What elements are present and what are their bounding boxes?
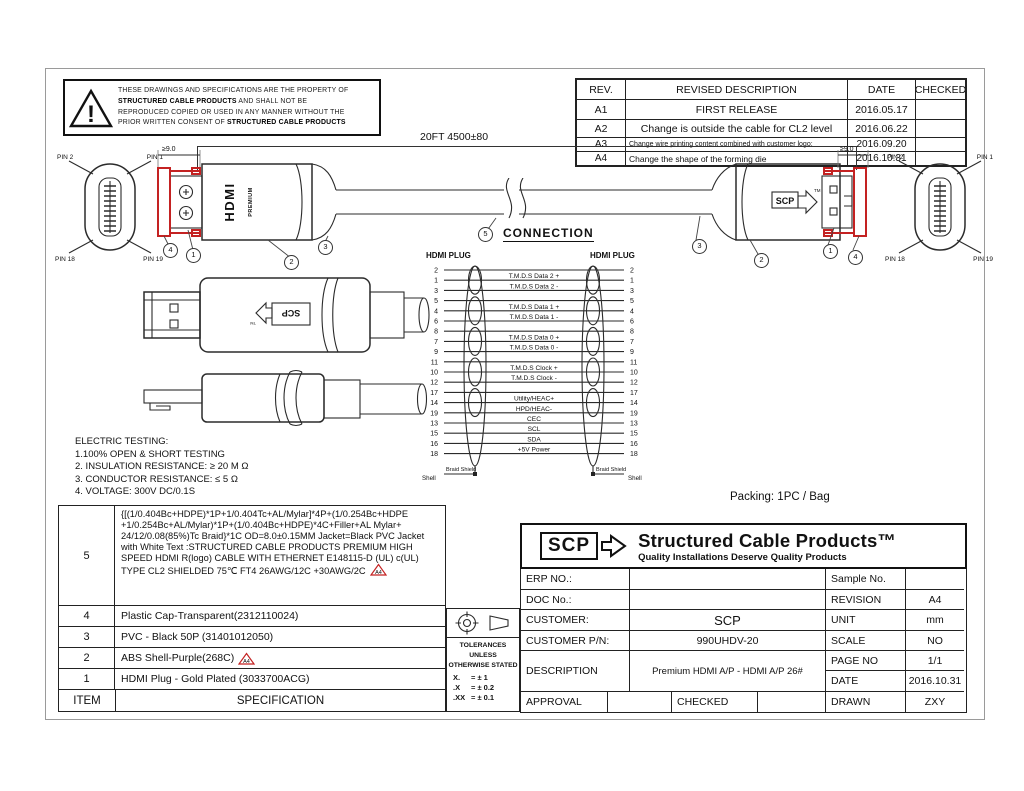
spec-row-item-1: 1HDMI Plug - Gold Plated (3033700ACG) bbox=[59, 669, 445, 690]
scp-logo-text-rotated: SCP bbox=[282, 308, 301, 318]
svg-text:19: 19 bbox=[630, 410, 638, 417]
customer-pn-value: 990UHDV-20 bbox=[629, 630, 825, 650]
svg-text:16: 16 bbox=[430, 441, 438, 448]
svg-text:9: 9 bbox=[630, 349, 634, 356]
svg-text:3: 3 bbox=[630, 288, 634, 295]
doc-no-value bbox=[629, 589, 825, 609]
spec-item-number: 5 bbox=[59, 506, 115, 605]
date-value: 2016.10.31 bbox=[905, 670, 964, 691]
customer-pn-label: CUSTOMER P/N: bbox=[521, 630, 629, 650]
svg-text:CEC: CEC bbox=[527, 416, 541, 423]
spec-rows: 5{[(1/0.404Bc+HDPE)*1P+1/0.404Tc+AL/Myla… bbox=[59, 506, 445, 690]
callout-2-badge: 2 bbox=[284, 255, 299, 270]
electric-testing-title: ELECTRIC TESTING: bbox=[75, 436, 249, 449]
svg-text:13: 13 bbox=[430, 421, 438, 428]
tolerance-row: X.= ± 1 bbox=[447, 672, 519, 682]
doc-no-label: DOC No.: bbox=[521, 589, 629, 609]
erp-value bbox=[629, 569, 825, 589]
plug-detail-side-view bbox=[132, 352, 432, 444]
scp-tm-text: TM bbox=[814, 188, 821, 193]
company-tagline: Quality Installations Deserve Quality Pr… bbox=[638, 552, 896, 563]
svg-text:5: 5 bbox=[630, 298, 634, 305]
checked-label: CHECKED bbox=[671, 692, 757, 712]
packing-note: Packing: 1PC / Bag bbox=[730, 491, 830, 503]
svg-text:16: 16 bbox=[630, 441, 638, 448]
pin1-label: PIN 1 bbox=[977, 154, 994, 161]
svg-text:7: 7 bbox=[630, 339, 634, 346]
approval-strip: APPROVAL CHECKED bbox=[521, 691, 825, 712]
date-col-header: DATE bbox=[847, 80, 915, 99]
spec-item-number: 1 bbox=[59, 669, 115, 689]
warning-text: THESE DRAWINGS AND SPECIFICATIONS ARE TH… bbox=[118, 86, 348, 129]
svg-text:8: 8 bbox=[630, 329, 634, 336]
svg-text:15: 15 bbox=[630, 431, 638, 438]
callout-1-badge: 1 bbox=[186, 248, 201, 263]
unit-value: mm bbox=[905, 609, 964, 630]
title-block-grid: ERP NO.: Sample No. DOC No.: REVISION A4… bbox=[520, 569, 967, 713]
left-cap-dimension: ≥9.0 bbox=[162, 146, 176, 153]
tolerance-row: .X= ± 0.2 bbox=[447, 682, 519, 692]
electric-testing-item: 1.100% OPEN & SHORT TESTING bbox=[75, 449, 249, 462]
svg-text:7: 7 bbox=[434, 339, 438, 346]
frustum-projection-icon bbox=[487, 611, 511, 635]
svg-text:Braid Shield: Braid Shield bbox=[446, 467, 476, 473]
spec-row-item-2: 2ABS Shell-Purple(268C)A4 bbox=[59, 648, 445, 669]
svg-text:1: 1 bbox=[434, 278, 438, 285]
spec-item-text: PVC - Black 50P (31401012050) bbox=[115, 627, 445, 647]
callout-2-badge: 2 bbox=[754, 253, 769, 268]
scp-logo-arrow-icon bbox=[600, 532, 628, 560]
spec-row-item-4: 4Plastic Cap-Transparent(2312110024) bbox=[59, 606, 445, 627]
svg-text:Utility/HEAC+: Utility/HEAC+ bbox=[514, 396, 554, 403]
callout-1-badge: 1 bbox=[823, 244, 838, 259]
sample-no-value bbox=[905, 569, 964, 589]
description-col-header: REVISED DESCRIPTION bbox=[625, 80, 847, 99]
specification-table: 5{[(1/0.404Bc+HDPE)*1P+1/0.404Tc+AL/Myla… bbox=[58, 505, 446, 712]
scale-value: NO bbox=[905, 630, 964, 650]
pin18-label: PIN 18 bbox=[55, 256, 75, 263]
erp-label: ERP NO.: bbox=[521, 569, 629, 589]
svg-text:T.M.D.S Data 0 +: T.M.D.S Data 0 + bbox=[509, 334, 560, 341]
spec-item-text: {[(1/0.404Bc+HDPE)*1P+1/0.404Tc+AL/Mylar… bbox=[115, 506, 445, 605]
pin18-label: PIN 18 bbox=[885, 256, 905, 263]
customer-label: CUSTOMER: bbox=[521, 609, 629, 630]
svg-text:12: 12 bbox=[430, 380, 438, 387]
revision-marker-icon: A4 bbox=[238, 652, 255, 665]
warning-triangle-icon: ! bbox=[68, 87, 114, 129]
svg-text:6: 6 bbox=[630, 319, 634, 326]
revision-table-header: REV. REVISED DESCRIPTION DATE CHECKED bbox=[577, 80, 965, 99]
pin19-label: PIN 19 bbox=[973, 256, 993, 263]
svg-text:18: 18 bbox=[430, 451, 438, 458]
electric-testing-block: ELECTRIC TESTING: 1.100% OPEN & SHORT TE… bbox=[75, 436, 249, 499]
scp-logo: SCP bbox=[540, 532, 598, 560]
svg-text:6: 6 bbox=[434, 319, 438, 326]
length-dimension-label: 20FT 4500±80 bbox=[420, 131, 488, 143]
spec-item-text: HDMI Plug - Gold Plated (3033700ACG) bbox=[115, 669, 445, 689]
svg-text:5: 5 bbox=[434, 298, 438, 305]
scale-label: SCALE bbox=[825, 630, 905, 650]
svg-text:10: 10 bbox=[630, 370, 638, 377]
svg-text:4: 4 bbox=[434, 308, 438, 315]
spec-item-number: 2 bbox=[59, 648, 115, 668]
premium-text: PREMIUM bbox=[248, 187, 254, 216]
approval-value bbox=[607, 692, 671, 712]
target-projection-icon bbox=[455, 611, 479, 635]
page-no-label: PAGE NO bbox=[825, 650, 905, 670]
electric-testing-item: 2. INSULATION RESISTANCE: ≥ 20 M Ω bbox=[75, 461, 249, 474]
spec-row-item-3: 3PVC - Black 50P (31401012050) bbox=[59, 627, 445, 648]
svg-text:HPD/HEAC-: HPD/HEAC- bbox=[516, 406, 552, 413]
connection-diagram: 2211T.M.D.S Data 2 +33T.M.D.S Data 2 -55… bbox=[420, 262, 680, 492]
electric-testing-item: 3. CONDUCTOR RESISTANCE: ≤ 5 Ω bbox=[75, 474, 249, 487]
description-value: Premium HDMI A/P - HDMI A/P 26# bbox=[629, 650, 825, 691]
drawn-label: DRAWN bbox=[825, 691, 905, 712]
svg-text:8: 8 bbox=[434, 329, 438, 336]
svg-text:T.M.D.S Data 1 -: T.M.D.S Data 1 - bbox=[510, 314, 559, 321]
spec-item-text: Plastic Cap-Transparent(2312110024) bbox=[115, 606, 445, 626]
svg-text:Shell: Shell bbox=[422, 475, 436, 482]
scp-logo-text: SCP bbox=[776, 196, 795, 206]
svg-text:T.M.D.S Clock +: T.M.D.S Clock + bbox=[510, 365, 558, 372]
revision-row-A2: A2Change is outside the cable for CL2 le… bbox=[577, 119, 965, 137]
svg-text:SCL: SCL bbox=[528, 426, 541, 433]
spec-item-number: 3 bbox=[59, 627, 115, 647]
svg-text:SDA: SDA bbox=[527, 436, 541, 443]
svg-text:Braid Shield: Braid Shield bbox=[596, 467, 626, 473]
connection-title: CONNECTION bbox=[503, 226, 594, 242]
drawn-value: ZXY bbox=[905, 691, 964, 712]
svg-text:2: 2 bbox=[630, 268, 634, 275]
svg-text:Shell: Shell bbox=[628, 475, 642, 482]
page-no-value: 1/1 bbox=[905, 650, 964, 670]
pin2-label: PIN 2 bbox=[57, 154, 74, 161]
left-plug-side-view: ≥9.0 HDMI PREMIUM bbox=[148, 140, 373, 265]
title-block-header: SCP Structured Cable Products™ Quality I… bbox=[520, 523, 967, 569]
svg-text:14: 14 bbox=[630, 400, 638, 407]
svg-text:!: ! bbox=[87, 101, 95, 128]
svg-text:15: 15 bbox=[430, 431, 438, 438]
title-block: SCP Structured Cable Products™ Quality I… bbox=[520, 523, 967, 713]
callout-4-badge: 4 bbox=[163, 243, 178, 258]
checked-value bbox=[757, 692, 825, 712]
svg-text:11: 11 bbox=[431, 359, 438, 366]
sample-no-label: Sample No. bbox=[825, 569, 905, 589]
svg-text:T.M.D.S Data 0 -: T.M.D.S Data 0 - bbox=[510, 345, 559, 352]
scp-tm-text-rotated: TM bbox=[250, 321, 256, 326]
electric-testing-item: 4. VOLTAGE: 300V DC/0.1S bbox=[75, 486, 249, 499]
svg-text:T.M.D.S Data 2 +: T.M.D.S Data 2 + bbox=[509, 273, 560, 280]
svg-text:T.M.D.S Clock -: T.M.D.S Clock - bbox=[511, 375, 557, 382]
right-cap-dimension: ≥9.0 bbox=[840, 146, 854, 153]
callout-4-badge: 4 bbox=[848, 250, 863, 265]
revision-value: A4 bbox=[905, 589, 964, 609]
right-plug-header: HDMI PLUG bbox=[590, 251, 635, 260]
spec-item-number: 4 bbox=[59, 606, 115, 626]
customer-value: SCP bbox=[629, 609, 825, 630]
svg-text:+5V Power: +5V Power bbox=[518, 447, 551, 454]
pin2-label: PIN 2 bbox=[887, 154, 904, 161]
hdmi-brand-text: HDMI bbox=[222, 182, 237, 221]
rev-col-header: REV. bbox=[577, 80, 625, 99]
company-names: Structured Cable Products™ Quality Insta… bbox=[638, 530, 896, 563]
callout-5-badge: 5 bbox=[478, 227, 493, 242]
company-name: Structured Cable Products™ bbox=[638, 530, 896, 552]
svg-text:18: 18 bbox=[630, 451, 638, 458]
callout-3-badge: 3 bbox=[318, 240, 333, 255]
tolerance-block: TOLERANCES UNLESS OTHERWISE STATED X.= ±… bbox=[446, 608, 520, 712]
spec-table-footer: ITEM SPECIFICATION bbox=[59, 690, 445, 711]
svg-text:2: 2 bbox=[434, 268, 438, 275]
date-label: DATE bbox=[825, 670, 905, 691]
svg-text:11: 11 bbox=[630, 359, 637, 366]
svg-text:3: 3 bbox=[434, 288, 438, 295]
item-header: ITEM bbox=[59, 690, 116, 711]
left-plug-header: HDMI PLUG bbox=[426, 251, 471, 260]
specification-header: SPECIFICATION bbox=[116, 690, 445, 711]
svg-text:A4: A4 bbox=[375, 570, 382, 576]
svg-text:T.M.D.S Data 2 -: T.M.D.S Data 2 - bbox=[510, 283, 559, 290]
right-connector-face-view: PIN 2 PIN 1 PIN 18 PIN 19 bbox=[885, 148, 995, 266]
projection-symbols bbox=[447, 609, 519, 638]
svg-text:14: 14 bbox=[430, 400, 438, 407]
svg-text:17: 17 bbox=[630, 390, 638, 397]
warning-box: ! THESE DRAWINGS AND SPECIFICATIONS ARE … bbox=[63, 79, 381, 136]
callout-3-badge: 3 bbox=[692, 239, 707, 254]
approval-label: APPROVAL bbox=[521, 692, 607, 712]
revision-row-A1: A1FIRST RELEASE2016.05.17 bbox=[577, 99, 965, 119]
svg-text:10: 10 bbox=[430, 370, 438, 377]
tolerance-note: TOLERANCES UNLESS OTHERWISE STATED bbox=[447, 641, 519, 672]
spec-item-text: ABS Shell-Purple(268C)A4 bbox=[115, 648, 445, 668]
revision-marker-icon: A4 bbox=[370, 563, 387, 576]
svg-text:1: 1 bbox=[630, 278, 634, 285]
svg-text:9: 9 bbox=[434, 349, 438, 356]
svg-text:13: 13 bbox=[630, 421, 638, 428]
tolerance-row: .XX= ± 0.1 bbox=[447, 692, 519, 702]
svg-text:12: 12 bbox=[630, 380, 638, 387]
checked-col-header: CHECKED bbox=[915, 80, 965, 99]
unit-label: UNIT bbox=[825, 609, 905, 630]
svg-text:T.M.D.S Data 1 +: T.M.D.S Data 1 + bbox=[509, 304, 560, 311]
right-plug-side-view: SCP TM ≥9.0 bbox=[688, 140, 900, 265]
spec-row-item-5: 5{[(1/0.404Bc+HDPE)*1P+1/0.404Tc+AL/Myla… bbox=[59, 506, 445, 606]
svg-text:17: 17 bbox=[430, 390, 438, 397]
svg-text:19: 19 bbox=[430, 410, 438, 417]
revision-label: REVISION bbox=[825, 589, 905, 609]
svg-text:4: 4 bbox=[630, 308, 634, 315]
svg-text:A4: A4 bbox=[243, 659, 250, 665]
plug-detail-top-view: SCP TM bbox=[132, 266, 432, 364]
description-label: DESCRIPTION bbox=[521, 650, 629, 691]
